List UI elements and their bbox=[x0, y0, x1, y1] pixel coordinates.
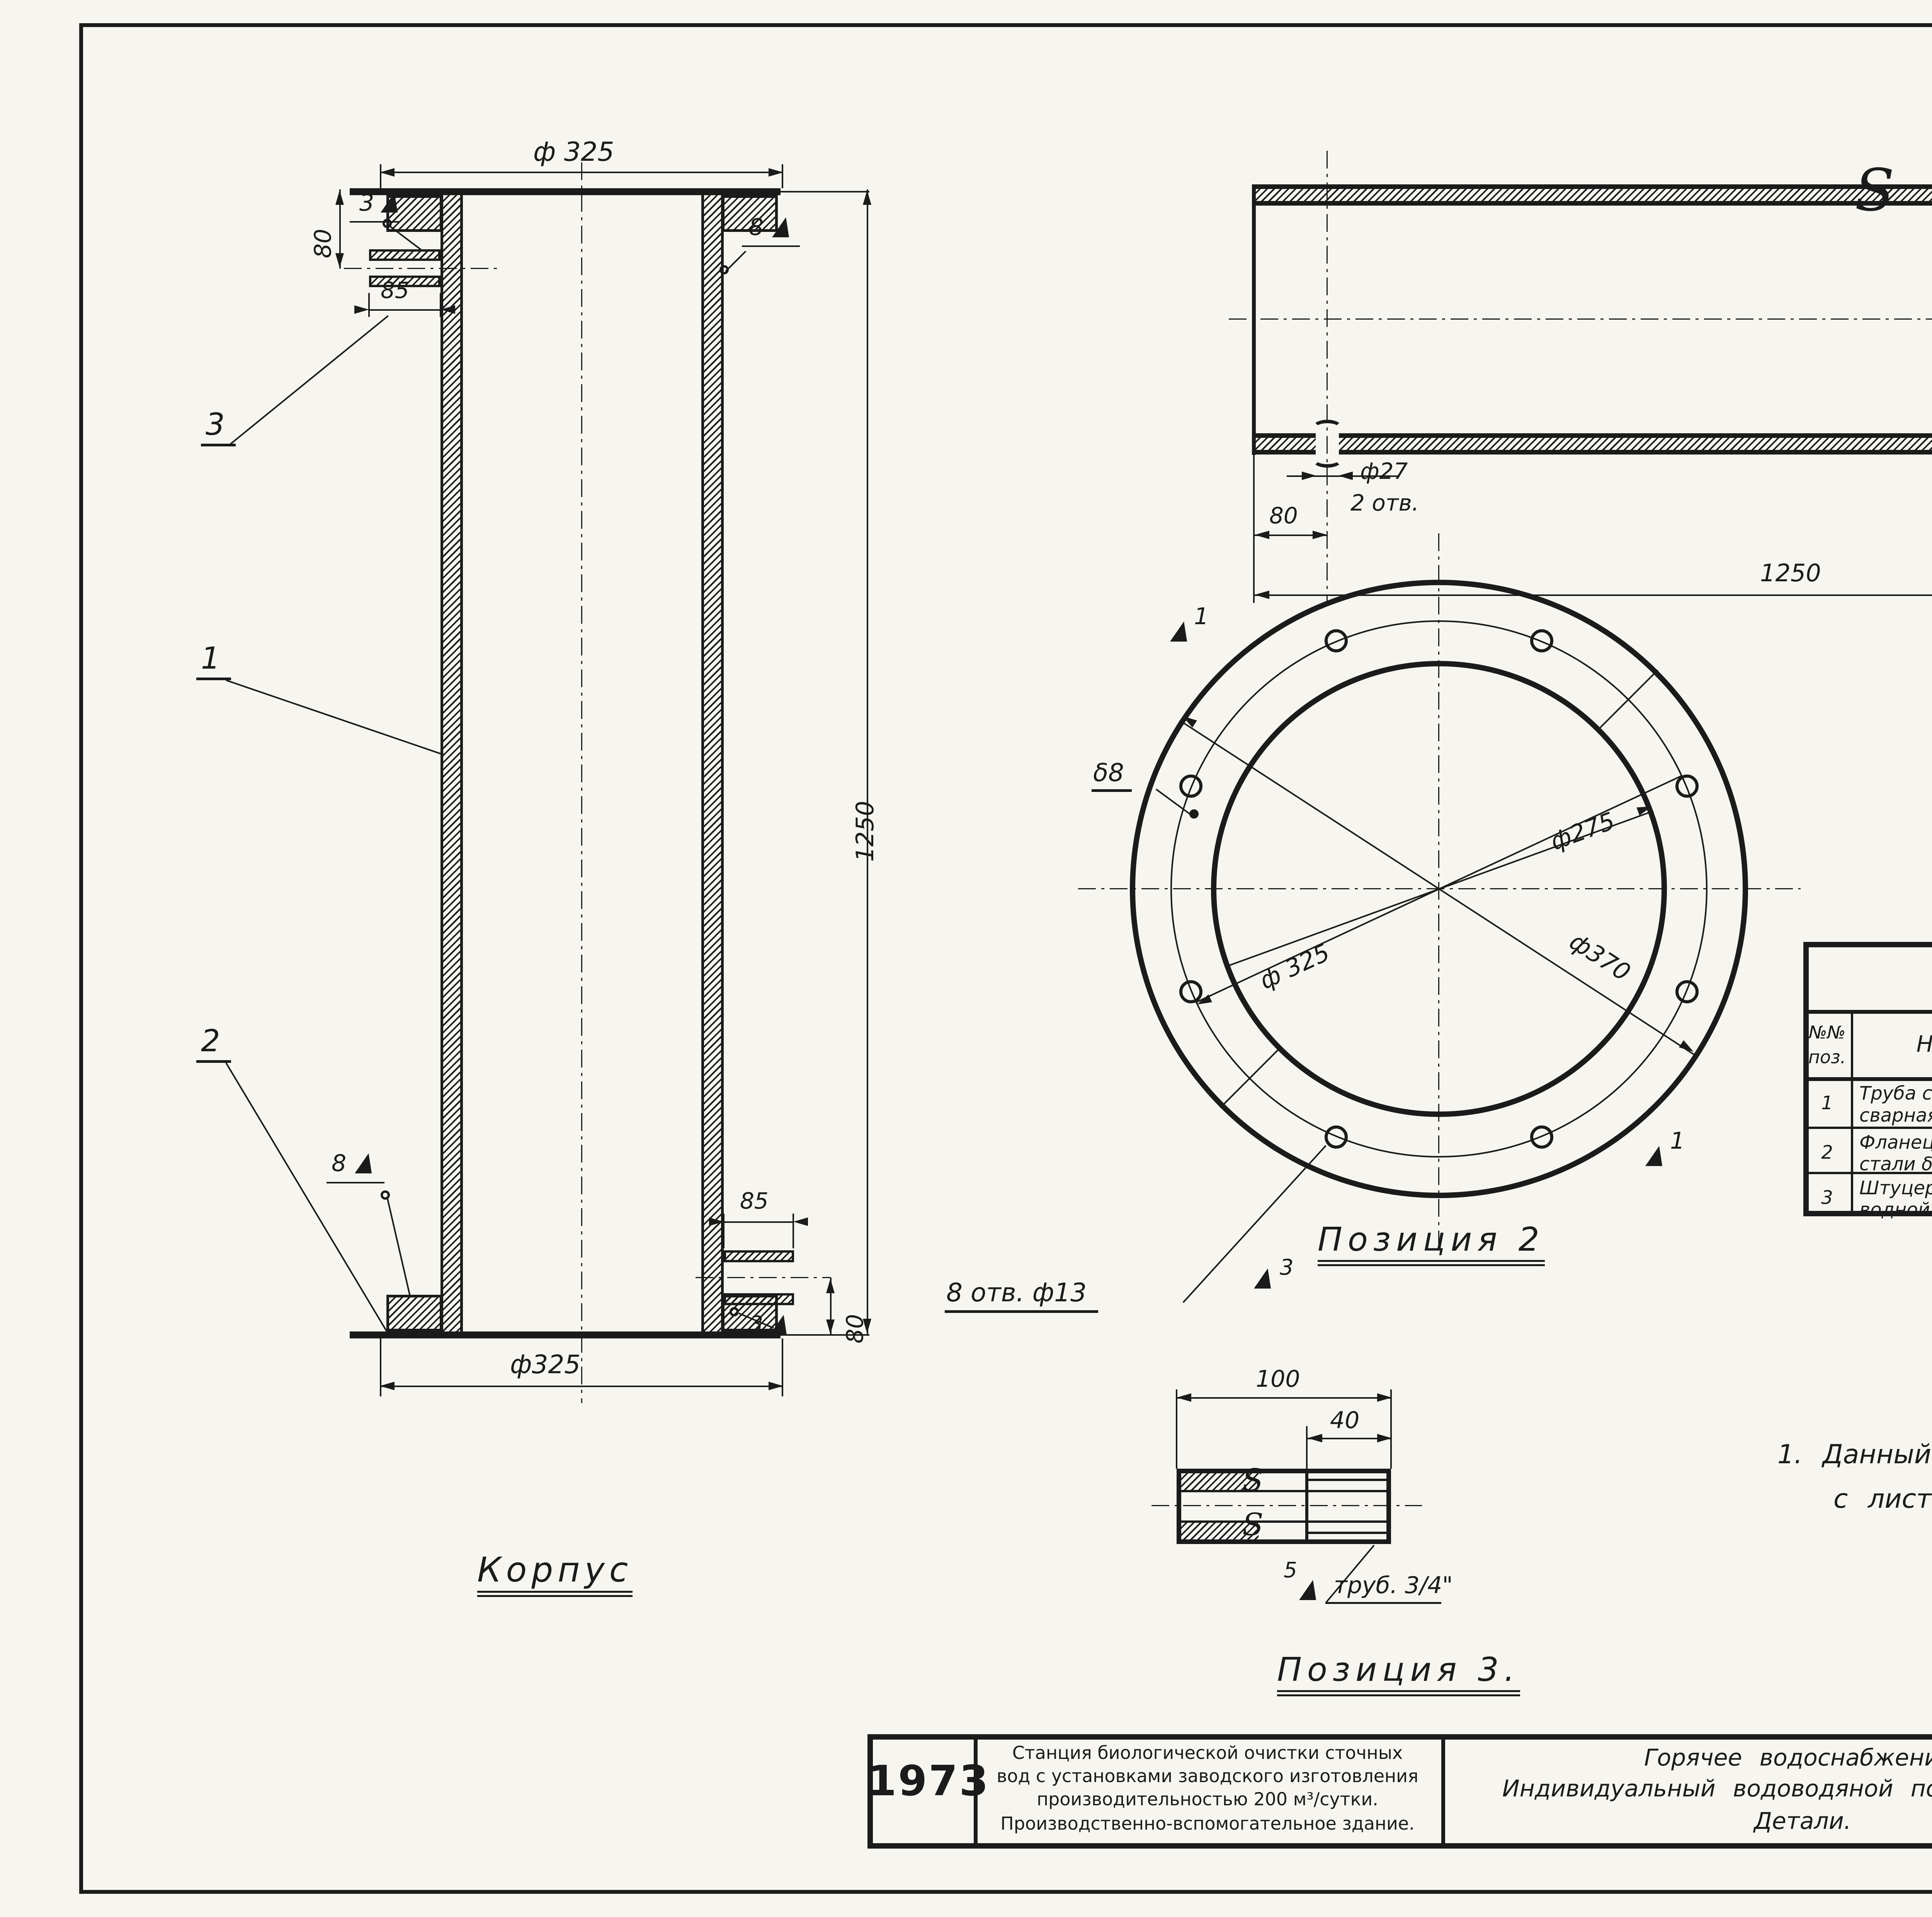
cell-pos: 3 bbox=[1803, 1188, 1851, 1207]
bolt-hole bbox=[1530, 1125, 1553, 1149]
cell-name: Штуцер из водогазопро- bbox=[1859, 1179, 1932, 1197]
dim-arrow bbox=[863, 190, 871, 205]
weld-flag-icon bbox=[770, 1315, 787, 1335]
dim-arrow bbox=[1338, 472, 1353, 480]
flange-view-title: Позиция 2 bbox=[1318, 1223, 1545, 1266]
dim-label: 100 bbox=[1256, 1367, 1300, 1391]
dim-label: 2 отв. bbox=[1350, 492, 1419, 514]
leader-line bbox=[327, 1182, 384, 1183]
dim-line bbox=[723, 1221, 794, 1223]
dim-arrow bbox=[769, 1382, 783, 1390]
bottom-left-flange-ring bbox=[386, 1295, 442, 1331]
leader-dot bbox=[383, 219, 392, 228]
dim-arrow bbox=[826, 1279, 835, 1293]
fitting-bore-line bbox=[1181, 1490, 1386, 1492]
dim-arrow bbox=[709, 1217, 724, 1226]
witness-line bbox=[1306, 1426, 1308, 1469]
cell-name: водной трубы bbox=[1859, 1200, 1932, 1219]
surface-mark: 3 bbox=[1280, 1257, 1294, 1279]
cell-name: Труба стальная электро- bbox=[1859, 1084, 1932, 1103]
dim-arrow bbox=[826, 1319, 835, 1334]
leader-line bbox=[350, 221, 400, 223]
note-line: с листом ОВ-6 bbox=[1833, 1486, 1932, 1512]
dim-label: 80 bbox=[1269, 504, 1298, 527]
dim-arrow bbox=[380, 168, 395, 177]
weld-flag-icon bbox=[1170, 621, 1187, 642]
note-line: 1. Данный лист рассматривать совместно bbox=[1777, 1442, 1932, 1468]
weld-flag-icon bbox=[1254, 1268, 1271, 1289]
table-line bbox=[1803, 1010, 1932, 1014]
cell-name: сварная. bbox=[1859, 1106, 1932, 1125]
weld-number: 8 bbox=[749, 216, 764, 239]
leader-line bbox=[742, 245, 800, 247]
dim-label: 1250 bbox=[1760, 561, 1821, 585]
pipe-centerline bbox=[1229, 318, 1932, 320]
dim-arrow bbox=[863, 1319, 871, 1333]
dim-arrow bbox=[335, 253, 344, 268]
left-stub-centerline bbox=[344, 268, 498, 269]
frame-left bbox=[79, 23, 83, 1894]
fitting-centerline bbox=[1151, 1505, 1422, 1506]
dim-arrow bbox=[769, 168, 783, 177]
dim-arrow bbox=[1377, 1393, 1392, 1402]
break-mark-icon: S bbox=[1242, 1509, 1264, 1540]
right-stub-bottom-wall bbox=[724, 1293, 794, 1305]
title-block-divider bbox=[1441, 1734, 1445, 1849]
dim-line bbox=[1176, 1397, 1392, 1399]
pipe-top-wall bbox=[1254, 184, 1932, 206]
leader-line bbox=[387, 1199, 411, 1297]
facility-line: производительностью 200 м³/сутки. bbox=[978, 1790, 1437, 1808]
facility-line: Станция биологической очистки сточных bbox=[978, 1744, 1437, 1762]
weld-number: 5 bbox=[1284, 1559, 1297, 1581]
callout-pos1: 1 bbox=[196, 644, 231, 680]
bolt-hole bbox=[1179, 775, 1202, 798]
cell-pos: 1 bbox=[1803, 1094, 1851, 1112]
weld-flag-icon bbox=[1299, 1580, 1316, 1600]
holes-note: 8 отв. ф13 bbox=[945, 1280, 1098, 1313]
weld-number: 8 bbox=[332, 1152, 346, 1175]
frame-bottom bbox=[79, 1890, 1932, 1894]
weld-flag-icon bbox=[1645, 1146, 1662, 1166]
leader-line bbox=[230, 315, 389, 445]
dim-label: 85 bbox=[740, 1190, 769, 1212]
dim-label: ф 325 bbox=[533, 139, 614, 165]
leader-dot bbox=[719, 265, 729, 274]
thread-label: труб. 3/4" bbox=[1334, 1574, 1453, 1597]
dim-arrow bbox=[1255, 531, 1269, 539]
thread-divider bbox=[1305, 1473, 1308, 1539]
col-header: Наименование bbox=[1851, 1033, 1932, 1055]
korpus-view-title: Корпус bbox=[477, 1553, 633, 1597]
surface-mark: 1 bbox=[1194, 605, 1209, 628]
weld-number: 3 bbox=[750, 1313, 763, 1335]
leader-dot bbox=[381, 1190, 390, 1200]
weld-flag-icon bbox=[355, 1153, 372, 1173]
dim-line bbox=[368, 309, 442, 311]
table-line bbox=[1803, 1127, 1932, 1129]
dim-arrow bbox=[793, 1217, 808, 1226]
leader-underline bbox=[1325, 1602, 1441, 1604]
leader-line bbox=[225, 1062, 389, 1335]
thread-line bbox=[1308, 1532, 1386, 1534]
dim-label: 1250 bbox=[853, 801, 877, 862]
callout-pos2: 2 bbox=[196, 1026, 231, 1063]
vessel-top-plate bbox=[350, 188, 781, 195]
cell-pos: 2 bbox=[1803, 1143, 1851, 1162]
facility-line: вод с установками заводского изготовлени… bbox=[978, 1767, 1437, 1785]
left-stub-top-wall bbox=[369, 249, 440, 261]
right-stub-top-wall bbox=[724, 1250, 794, 1262]
vessel-bottom-plate bbox=[350, 1331, 781, 1338]
weld-number: 3 bbox=[359, 191, 374, 215]
thread-line bbox=[1308, 1479, 1386, 1481]
witness-line bbox=[1253, 455, 1255, 603]
bolt-hole bbox=[1675, 980, 1699, 1003]
fitting-bore-line bbox=[1181, 1520, 1386, 1523]
dim-arrow bbox=[1302, 472, 1316, 480]
dim-label: ф325 bbox=[510, 1352, 580, 1377]
cell-name: Фланец из листовой bbox=[1859, 1133, 1932, 1152]
pipe-bottom-wall bbox=[1254, 433, 1932, 455]
year-label: 1973 bbox=[867, 1760, 974, 1802]
facility-line: Производственно-вспомогательное здание. bbox=[978, 1815, 1437, 1832]
dim-label: 40 bbox=[1330, 1409, 1359, 1432]
vessel-left-wall bbox=[440, 195, 463, 1331]
dim-line bbox=[867, 189, 868, 1335]
bolt-hole bbox=[1530, 629, 1553, 652]
dim-arrow bbox=[354, 305, 369, 314]
cell-name: стали δ= 8мм bbox=[1859, 1155, 1932, 1173]
subject-line: Детали. bbox=[1445, 1810, 1932, 1833]
weld-flag-icon bbox=[772, 217, 789, 237]
witness-line bbox=[781, 191, 869, 192]
table-line bbox=[1803, 1077, 1932, 1081]
dim-label: 80 bbox=[311, 229, 335, 258]
dim-arrow bbox=[1308, 1434, 1322, 1442]
frame-top bbox=[79, 23, 1932, 27]
dim-arrow bbox=[1313, 531, 1327, 539]
drawing-sheet: 35 ф 325 80 3 85 3 1 2 8 bbox=[0, 0, 1932, 1917]
weld-flag-icon bbox=[381, 192, 398, 213]
callout-pos3: 3 bbox=[201, 410, 236, 446]
dim-arrow bbox=[440, 305, 455, 314]
surface-mark: 1 bbox=[1670, 1129, 1685, 1153]
thickness-label: δ8 bbox=[1092, 761, 1132, 792]
dim-arrow bbox=[335, 190, 344, 205]
dim-arrow bbox=[1377, 1434, 1392, 1442]
leader-dot bbox=[730, 1307, 739, 1316]
vessel-centerline bbox=[581, 162, 582, 1403]
col-header: поз. bbox=[1803, 1048, 1851, 1066]
break-mark-icon: S bbox=[1855, 162, 1895, 220]
dim-arrow bbox=[1177, 1393, 1191, 1402]
dim-label: ф27 bbox=[1360, 460, 1408, 482]
dim-arrow bbox=[1255, 591, 1269, 599]
leader-dot bbox=[1189, 809, 1199, 819]
bolt-hole bbox=[1325, 1125, 1348, 1149]
subject-line: Горячее водоснабжение. bbox=[1445, 1746, 1932, 1769]
right-stub-centerline bbox=[696, 1277, 831, 1278]
bolt-hole bbox=[1675, 775, 1699, 798]
dim-label: 85 bbox=[381, 279, 409, 301]
pipe-left-end bbox=[1252, 184, 1256, 455]
bolt-hole bbox=[1325, 629, 1348, 652]
col-header: №№ bbox=[1803, 1023, 1851, 1041]
dim-arrow bbox=[380, 1382, 395, 1390]
break-mark-icon: S bbox=[1242, 1465, 1264, 1496]
subject-line: Индивидуальный водоводяной подогреватель… bbox=[1445, 1777, 1932, 1800]
leader-line bbox=[226, 679, 444, 756]
fitting-view-title: Позиция 3. bbox=[1277, 1653, 1520, 1696]
vessel-right-wall bbox=[701, 195, 724, 1331]
